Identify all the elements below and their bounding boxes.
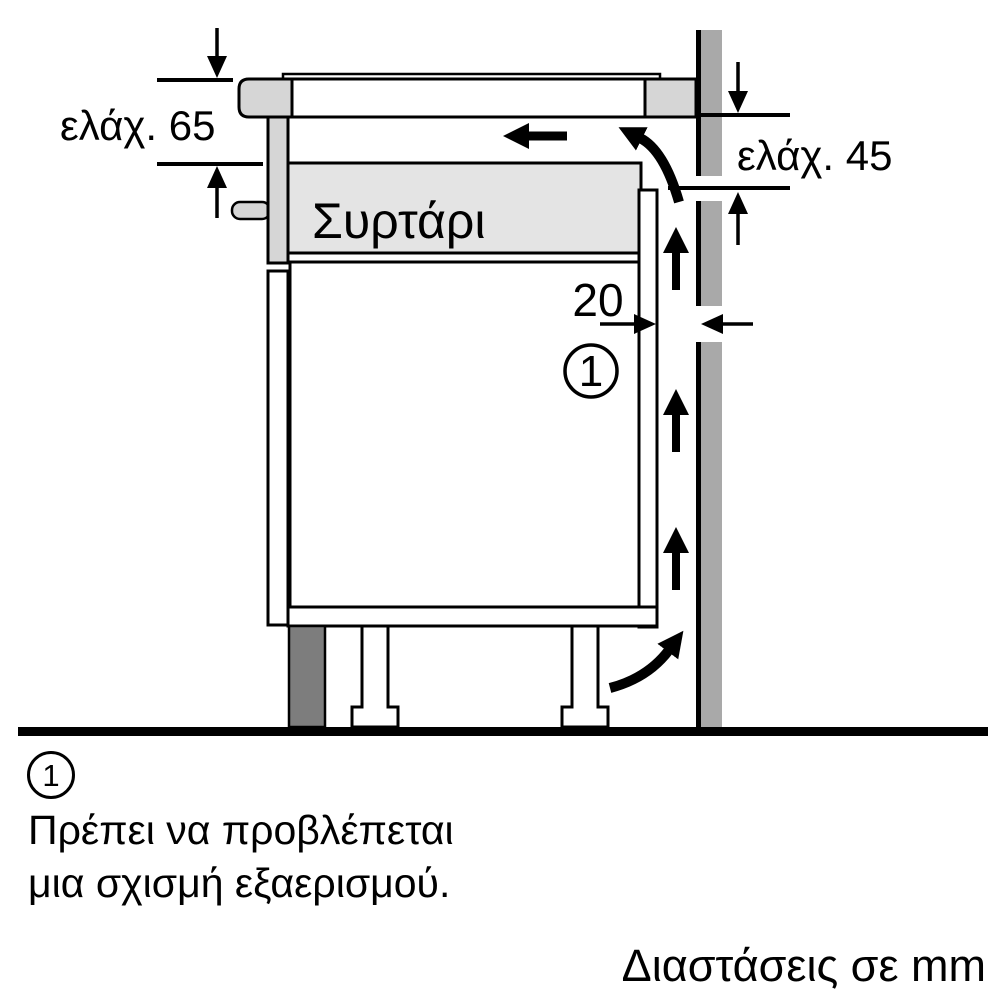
wall-cutout-dim20 xyxy=(692,306,726,342)
footnote-line-1: Πρέπει να προβλέπεται xyxy=(28,804,454,857)
wall-edge-line xyxy=(696,30,701,728)
dim-45-label: ελάχ. 45 xyxy=(737,132,892,179)
door-front-panel xyxy=(268,271,288,625)
floor-line xyxy=(18,727,988,736)
hob-installation-diagram: Συρτάρι ελάχ. 65 xyxy=(0,0,1000,745)
installation-diagram-page: Συρτάρι ελάχ. 65 xyxy=(0,0,1000,1000)
drawer-label: Συρτάρι xyxy=(312,193,486,249)
wall-surface xyxy=(701,30,722,728)
footnote-line-2: μια σχισμή εξαερισμού. xyxy=(28,857,454,910)
footnote-marker-number: 1 xyxy=(42,760,59,791)
hob xyxy=(239,74,696,117)
airflow-curved-arrow-bottom xyxy=(610,650,669,688)
hob-left-trim xyxy=(239,79,292,117)
cabinet-back-panel xyxy=(639,190,657,627)
cabinet-front xyxy=(232,117,288,625)
hob-right-trim xyxy=(645,79,696,117)
callout-1: 1 xyxy=(565,345,617,397)
cabinet-leg-right xyxy=(562,626,608,727)
wall xyxy=(692,30,726,728)
footnote-marker-circle: 1 xyxy=(27,751,75,799)
cabinet-carcass xyxy=(288,190,657,727)
dim-20-label: 20 xyxy=(572,274,623,326)
callout-number: 1 xyxy=(579,347,603,396)
units-note: Διαστάσεις σε mm xyxy=(622,940,986,992)
drawer-front-panel xyxy=(268,117,288,263)
drawer-handle xyxy=(232,202,270,219)
cabinet-bottom-bar xyxy=(288,607,657,626)
dim-65-label: ελάχ. 65 xyxy=(60,102,215,149)
drawer: Συρτάρι xyxy=(288,163,641,253)
hob-body xyxy=(292,79,645,117)
cabinet-leg-left xyxy=(352,626,398,727)
dimension-65: ελάχ. 65 xyxy=(60,28,263,218)
plinth xyxy=(289,626,325,727)
footnote-text: Πρέπει να προβλέπεται μια σχισμή εξαερισ… xyxy=(28,804,454,910)
